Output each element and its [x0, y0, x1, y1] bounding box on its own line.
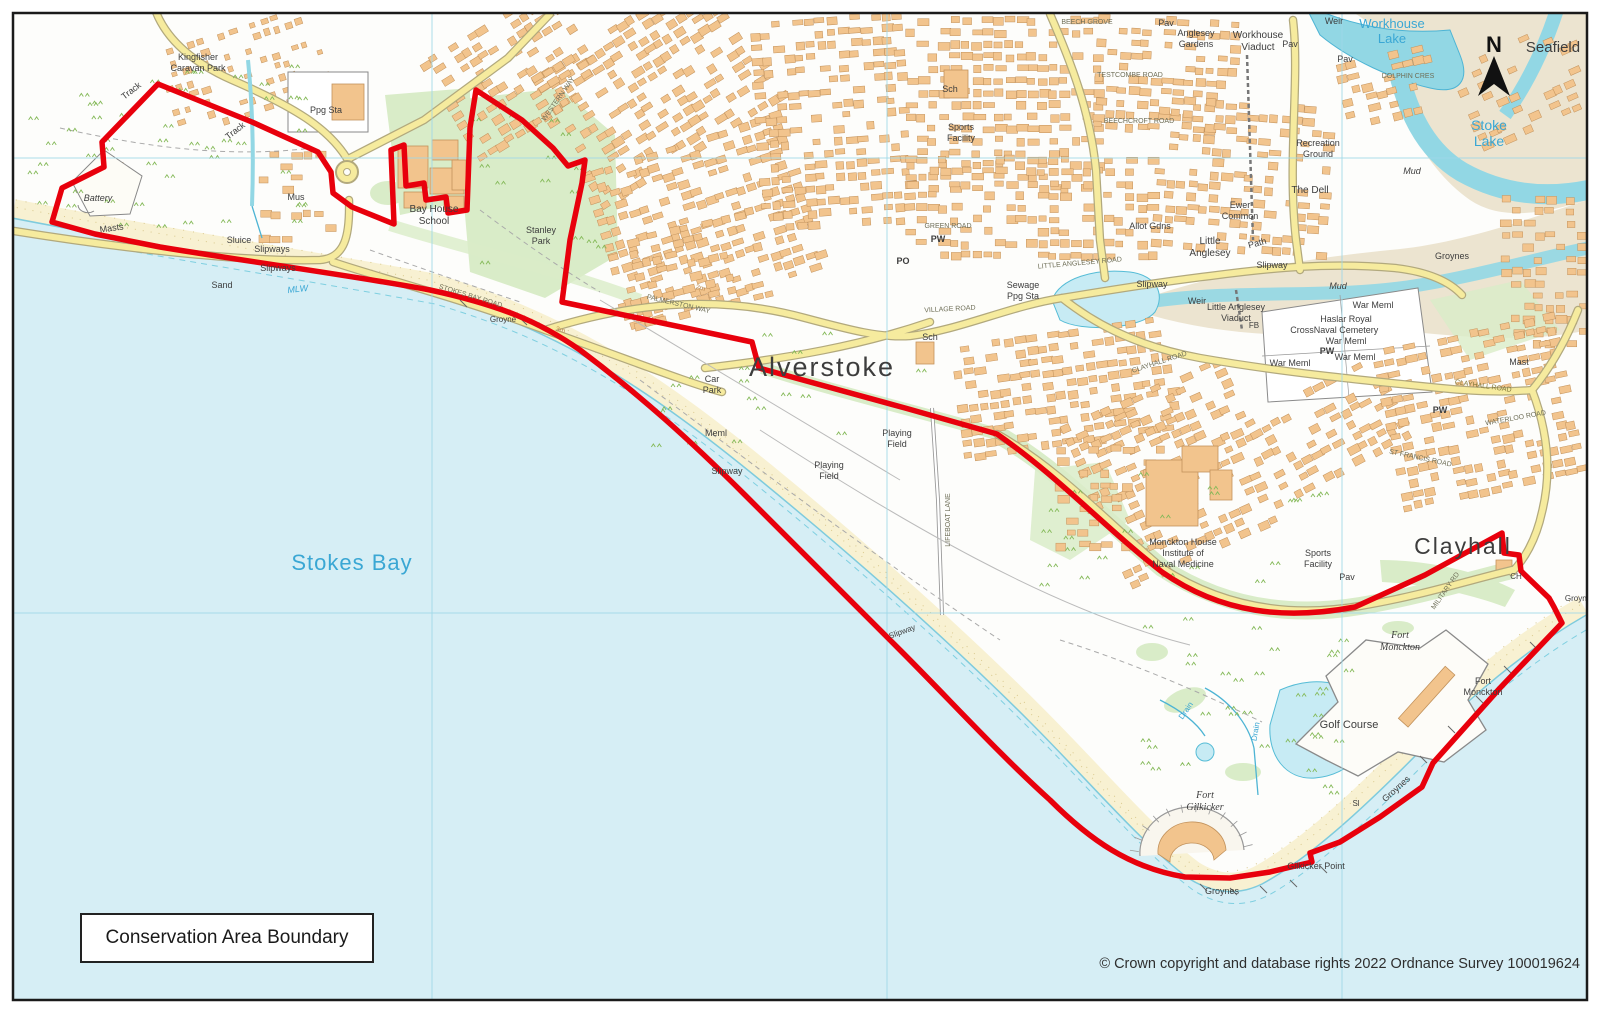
map-label: Sand	[211, 280, 232, 290]
map-label: Weir	[1325, 16, 1343, 26]
map-label: CH	[1510, 572, 1522, 581]
map-label: SewagePpg Sta	[1007, 280, 1040, 301]
map-page: Stokes BayAlverstokeClayhallStokeLakeWor…	[0, 0, 1600, 1013]
map-label: PW	[931, 234, 946, 244]
map-label: Sch	[922, 332, 938, 342]
map-label: Slipway	[1256, 260, 1288, 270]
map-label: Mud	[1329, 281, 1348, 291]
map-label: War Meml	[1270, 358, 1311, 368]
map-label: Gilkicker Point	[1287, 861, 1345, 871]
map-label: StokeLake	[1471, 117, 1507, 149]
map-label: Ppg Sta	[310, 105, 342, 115]
map-label: Battery	[84, 193, 113, 203]
map-label: War Meml	[1353, 300, 1394, 310]
legend-label: Conservation Area Boundary	[106, 927, 349, 949]
map-label: Golf Course	[1320, 719, 1379, 731]
map-label: PW	[1433, 405, 1448, 415]
map-label: Mud	[1403, 166, 1422, 176]
map-label: Meml	[705, 428, 727, 438]
map-label: Groynes	[1435, 251, 1470, 261]
map-label: Mast	[1509, 357, 1529, 367]
map-label: Sl	[1352, 799, 1359, 808]
map-label: SportsFacility	[1304, 548, 1333, 569]
map-label: Seafield	[1526, 39, 1580, 56]
map-label: Stokes Bay	[291, 550, 412, 575]
map-label: Slipways	[260, 263, 296, 273]
map-label: Pav	[1339, 572, 1355, 582]
map-label: The Dell	[1291, 185, 1328, 196]
map-label: TESTCOMBE ROAD	[1097, 72, 1163, 79]
north-arrow-label: N	[1486, 32, 1502, 57]
map-label: PO	[896, 256, 909, 266]
map-label: DOLPHIN CRES	[1382, 73, 1435, 80]
map-label: Sch	[942, 84, 958, 94]
map-label: PW	[1320, 346, 1335, 356]
map-label: FB	[1249, 321, 1259, 330]
legend-box: Conservation Area Boundary	[80, 913, 374, 963]
map-label: Weir	[1188, 296, 1206, 306]
map-label: Pav	[1282, 39, 1298, 49]
map-label: BEECHCROFT ROAD	[1104, 118, 1174, 125]
map-label: AngleseyGardens	[1177, 28, 1215, 49]
map-label: Alverstoke	[749, 352, 895, 382]
map-label: Sluice	[227, 235, 252, 245]
map-label: Slipway	[1136, 279, 1168, 289]
map-label: BEECH GROVE	[1061, 19, 1113, 26]
map-label: Clayhall	[1414, 533, 1512, 559]
map-label: LIFEBOAT LANE	[945, 493, 952, 547]
map-label: Mus	[287, 192, 305, 202]
map-label: Slipway	[711, 466, 743, 476]
map-label: CarPark	[703, 374, 722, 395]
map-label: Cross	[1290, 325, 1314, 335]
map-label: KingfisherCaravan Park	[170, 52, 226, 73]
map-label: SportsFacility	[947, 122, 976, 143]
map-canvas: Stokes BayAlverstokeClayhallStokeLakeWor…	[0, 0, 1600, 1013]
map-label: Pav	[1337, 54, 1353, 64]
map-label: Slipways	[254, 244, 290, 254]
map-label: Groynes	[1205, 886, 1240, 896]
map-label: GREEN ROAD	[924, 223, 971, 230]
map-label: Pav	[1158, 18, 1174, 28]
map-label: War Meml	[1335, 352, 1376, 362]
map-label: Groyne	[490, 315, 517, 324]
map-label: Allot Gdns	[1129, 221, 1171, 231]
copyright-text: © Crown copyright and database rights 20…	[1099, 956, 1580, 972]
